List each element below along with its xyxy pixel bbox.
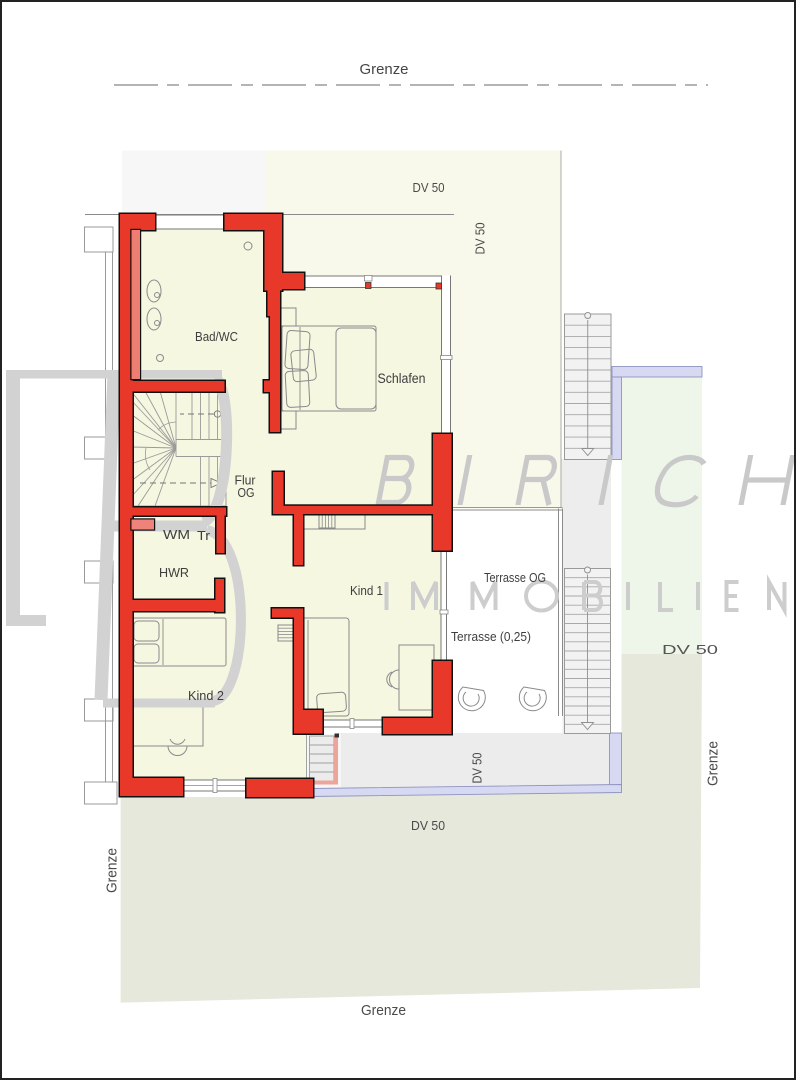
svg-text:Terrasse OG: Terrasse OG: [484, 571, 546, 585]
svg-text:Tr: Tr: [197, 529, 210, 543]
svg-text:Bad/WC: Bad/WC: [195, 329, 238, 344]
svg-text:DV 50: DV 50: [413, 181, 445, 195]
svg-text:DV 50: DV 50: [411, 818, 445, 833]
svg-text:Grenze: Grenze: [361, 1003, 406, 1019]
svg-text:Terrasse (0,25): Terrasse (0,25): [451, 630, 531, 644]
svg-text:OG: OG: [238, 486, 255, 500]
svg-text:Schlafen: Schlafen: [378, 371, 426, 386]
svg-text:DV 50: DV 50: [474, 222, 488, 254]
svg-text:HWR: HWR: [159, 566, 189, 580]
svg-text:Kind 2: Kind 2: [188, 689, 224, 703]
svg-text:Grenze: Grenze: [105, 848, 121, 893]
svg-text:Grenze: Grenze: [706, 741, 722, 786]
svg-text:DV 50: DV 50: [662, 642, 718, 657]
svg-text:WM: WM: [163, 528, 190, 542]
svg-text:DV 50: DV 50: [471, 752, 485, 783]
svg-text:Kind 1: Kind 1: [350, 584, 383, 598]
svg-text:Grenze: Grenze: [360, 61, 409, 78]
